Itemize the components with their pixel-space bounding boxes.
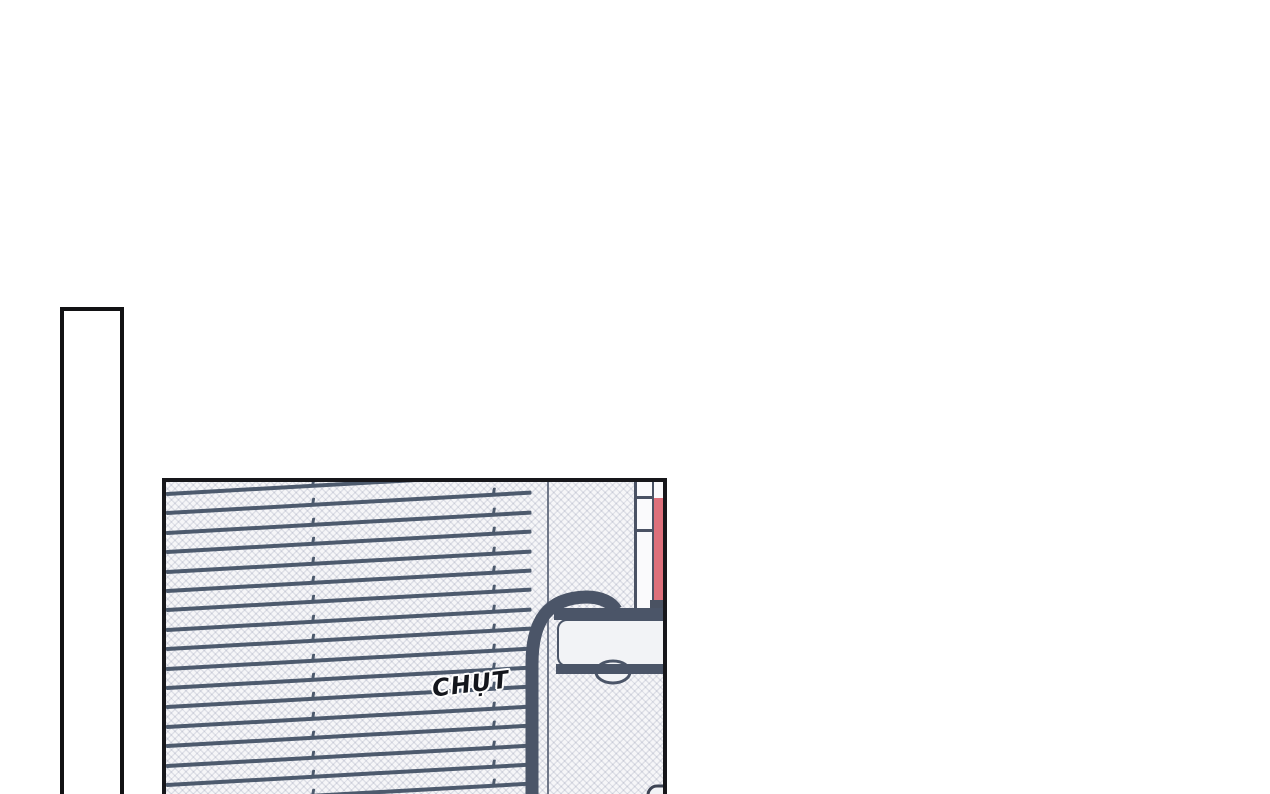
- headboard-shelf: [558, 620, 667, 666]
- comic-panel-main: CHỤT: [162, 478, 667, 794]
- page-background: { "page": {"background": "#ffffff"}, "sf…: [0, 0, 1270, 794]
- headboard-lower-bar: [556, 664, 667, 674]
- headboard-frame-art: [166, 482, 663, 794]
- panel-wall-screentone: CHỤT: [166, 482, 663, 794]
- corner-object: [648, 786, 667, 794]
- comic-panel-sliver: [60, 307, 124, 794]
